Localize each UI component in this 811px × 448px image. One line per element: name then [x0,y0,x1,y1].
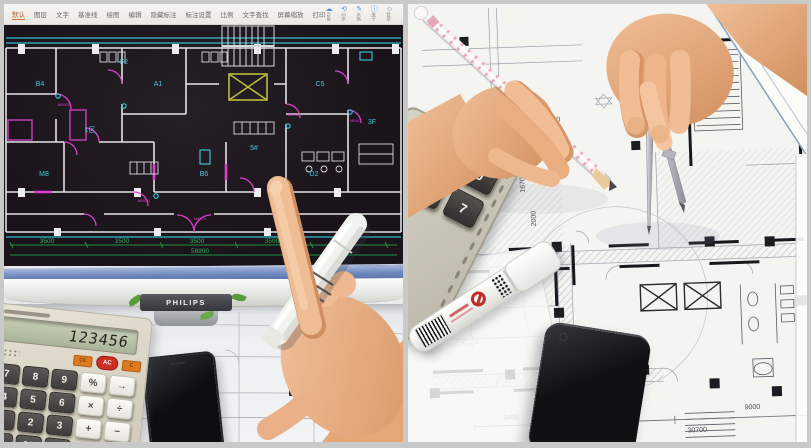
menu-item-2[interactable]: 文字 [56,9,69,20]
calc-key: ÷ [106,397,134,420]
edit-label: 风格 [356,13,362,22]
calculator-key-ce: CE [73,354,93,367]
info-label: 关于 [371,13,377,22]
menu-item-5[interactable]: 编辑 [129,9,142,20]
room-label: B6 [200,171,209,178]
dim-value: 3500 [340,238,355,245]
photo-collage: 默认 图层 文字 基准线 绘图 编辑 隐藏标注 标注设置 比例 文字查找 屏幕缩… [0,0,811,448]
calculator-solar-dots [4,348,20,358]
phone-camera [559,333,568,342]
room-label: M8 [39,171,49,178]
dim-value: 3500 [115,238,130,245]
edit-icon[interactable]: ✎风格 [356,6,363,23]
cloud-glyph: ☁ [326,6,333,13]
cad-menu-items: 默认 图层 文字 基准线 绘图 编辑 隐藏标注 标注设置 比例 文字查找 屏幕缩… [4,9,326,20]
door-label: M0921 [194,216,207,221]
calc-key: 1 [408,168,449,210]
calculator-corner-keys: 0 0 1 7 [408,135,507,231]
dim-9000: 9000 [745,404,761,412]
dim-value: 3500 [40,238,55,245]
calc-key: . [43,437,71,442]
calc-key: = [72,440,100,442]
sync-label: 同步 [341,13,347,22]
calc-key: 9 [50,368,78,391]
cloud-icon[interactable]: ☁云盘 [326,6,333,23]
room-label: B4 [36,81,45,88]
menu-item-6[interactable]: 隐藏标注 [151,9,177,20]
dim-500: 500 [548,117,560,124]
calc-key: 4 [4,385,18,408]
door-label: M0921 [138,198,151,203]
room-label: A1 [154,81,163,88]
edit-glyph: ✎ [356,6,362,13]
calc-key: 1 [4,408,16,431]
dim-total: 56900 [191,248,209,255]
calculator-key-ac: AC [96,355,119,371]
menu-item-11[interactable]: 打印 [313,9,326,20]
room-label: 1区 [85,126,96,134]
calculator-display-value: 123456 [67,327,131,351]
cad-elevator [229,74,267,100]
cad-door-labels: M0921 M0921 M0921 M0921 M0921 [58,102,363,221]
room-label: 5# [250,145,258,152]
dim-200: 200 [670,116,682,123]
calculator-keypad: 7 8 9 % → 4 5 6 × ÷ 1 2 3 + − 0 00 . = [4,362,140,442]
calc-key: 8 [21,365,49,388]
cad-room-labels: B4 1区 A1 C5 3F M8 B6 D2 5# F2 [36,59,376,178]
calc-key: 7 [441,187,485,229]
monitor-brand-badge: PHILIPS [140,294,232,311]
door-label: M0921 [350,118,363,123]
calc-key: 0 [4,431,13,442]
cad-doors-magenta [8,70,361,232]
menu-item-4[interactable]: 绘图 [107,9,120,20]
calculator: 123456 CE AC C 7 8 9 % → 4 5 6 × ÷ 1 2 [4,302,153,442]
menu-item-10[interactable]: 屏幕缩放 [278,9,304,20]
user-label: 登录 [386,13,392,22]
monitor-brand-text: PHILIPS [166,298,206,307]
smartphone [526,320,652,442]
door-label: M0921 [288,112,301,117]
menu-item-9[interactable]: 文字查找 [243,9,269,20]
cad-furniture [100,52,393,174]
room-label: C5 [316,81,325,88]
calc-key: 3 [45,414,73,437]
cad-floor-plan: B4 1区 A1 C5 3F M8 B6 D2 5# F2 M0921 M092… [4,24,403,266]
smartphone [141,350,225,442]
cad-screen: B4 1区 A1 C5 3F M8 B6 D2 5# F2 M0921 M092… [4,24,403,266]
user-glyph: ☺ [386,6,393,13]
calc-key: 6 [48,391,76,414]
info-glyph: ⓘ [371,6,378,13]
cloud-label: 云盘 [326,13,332,22]
cad-stairwell [222,26,274,66]
dim-value: 3500 [265,238,280,245]
cad-menubar-icons: ☁云盘 ⟲同步 ✎风格 ⓘ关于 ☺登录 [326,6,404,23]
cad-columns [18,44,399,236]
dim-30700: 30700 [687,427,707,435]
sync-icon[interactable]: ⟲同步 [341,6,348,23]
calc-key: 00 [14,434,42,442]
calc-key: % [79,371,107,394]
calc-key: 0 [458,154,502,196]
calc-key: + [74,417,102,440]
panel-divider [403,0,408,448]
menu-item-3[interactable]: 基准线 [78,9,98,20]
cad-fixtures-cyan [56,52,372,198]
room-label: D2 [310,171,319,178]
left-photo-cad-monitor: 默认 图层 文字 基准线 绘图 编辑 隐藏标注 标注设置 比例 文字查找 屏幕缩… [4,4,403,442]
room-label: 3F [368,119,376,126]
cad-walls [6,48,401,232]
door-label: M0921 [58,102,71,107]
calc-key: × [77,394,105,417]
cad-corridor-lines [6,38,401,237]
menu-item-0[interactable]: 默认 [12,9,25,20]
sync-glyph: ⟲ [341,6,347,13]
cad-dimensions: 3500 3500 3500 3500 3500 56900 [10,238,397,255]
calc-key: 0 [422,135,466,177]
calculator-key-c: C [122,359,142,372]
calc-key: − [103,420,131,442]
right-photo-blueprint-desk: 3400 9000 30700 500 200 2000 1670 [408,4,807,442]
phone-speaker [169,362,185,366]
menu-item-7[interactable]: 标注设置 [186,9,212,20]
calc-key: → [108,375,136,398]
menu-item-8[interactable]: 比例 [221,9,234,20]
menu-item-1[interactable]: 图层 [34,9,47,20]
info-icon[interactable]: ⓘ关于 [371,6,378,23]
calc-key: 2 [17,411,45,434]
cad-menubar: 默认 图层 文字 基准线 绘图 编辑 隐藏标注 标注设置 比例 文字查找 屏幕缩… [4,4,403,25]
calc-key: 7 [4,362,21,385]
user-icon[interactable]: ☺登录 [386,6,393,23]
dim-value: 3500 [190,238,205,245]
room-label: F2 [120,59,128,66]
calc-key: 5 [19,388,47,411]
